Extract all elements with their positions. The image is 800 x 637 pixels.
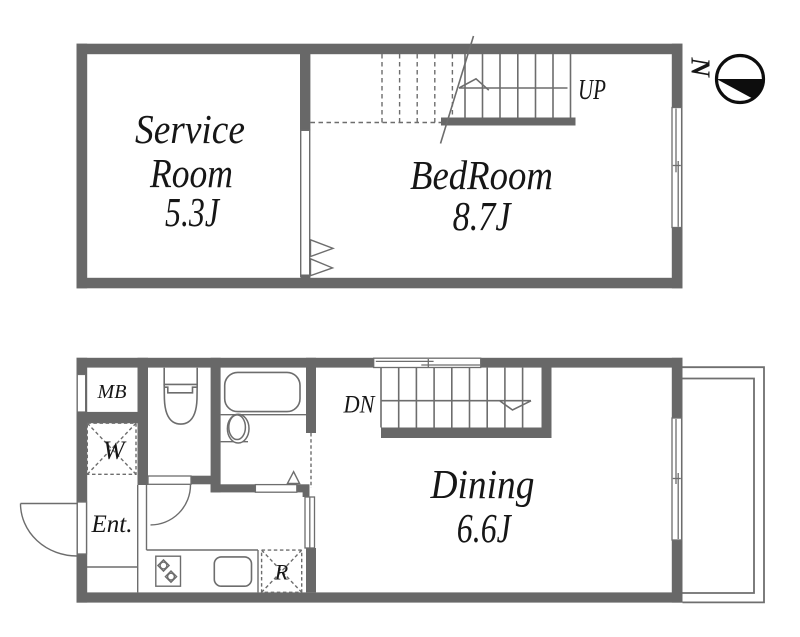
svg-text:UP: UP [578,74,606,106]
svg-text:Service: Service [135,106,245,152]
svg-text:Dining: Dining [430,461,535,507]
svg-text:Ent.: Ent. [91,511,133,538]
svg-text:MB: MB [97,381,127,403]
svg-text:DN: DN [343,390,377,419]
svg-text:N: N [686,57,716,79]
svg-text:6.6J: 6.6J [457,505,512,551]
svg-text:BedRoom: BedRoom [410,152,553,198]
svg-text:5.3J: 5.3J [165,189,220,235]
svg-text:R: R [274,559,289,584]
svg-text:W: W [103,436,127,465]
svg-text:8.7J: 8.7J [453,193,513,239]
